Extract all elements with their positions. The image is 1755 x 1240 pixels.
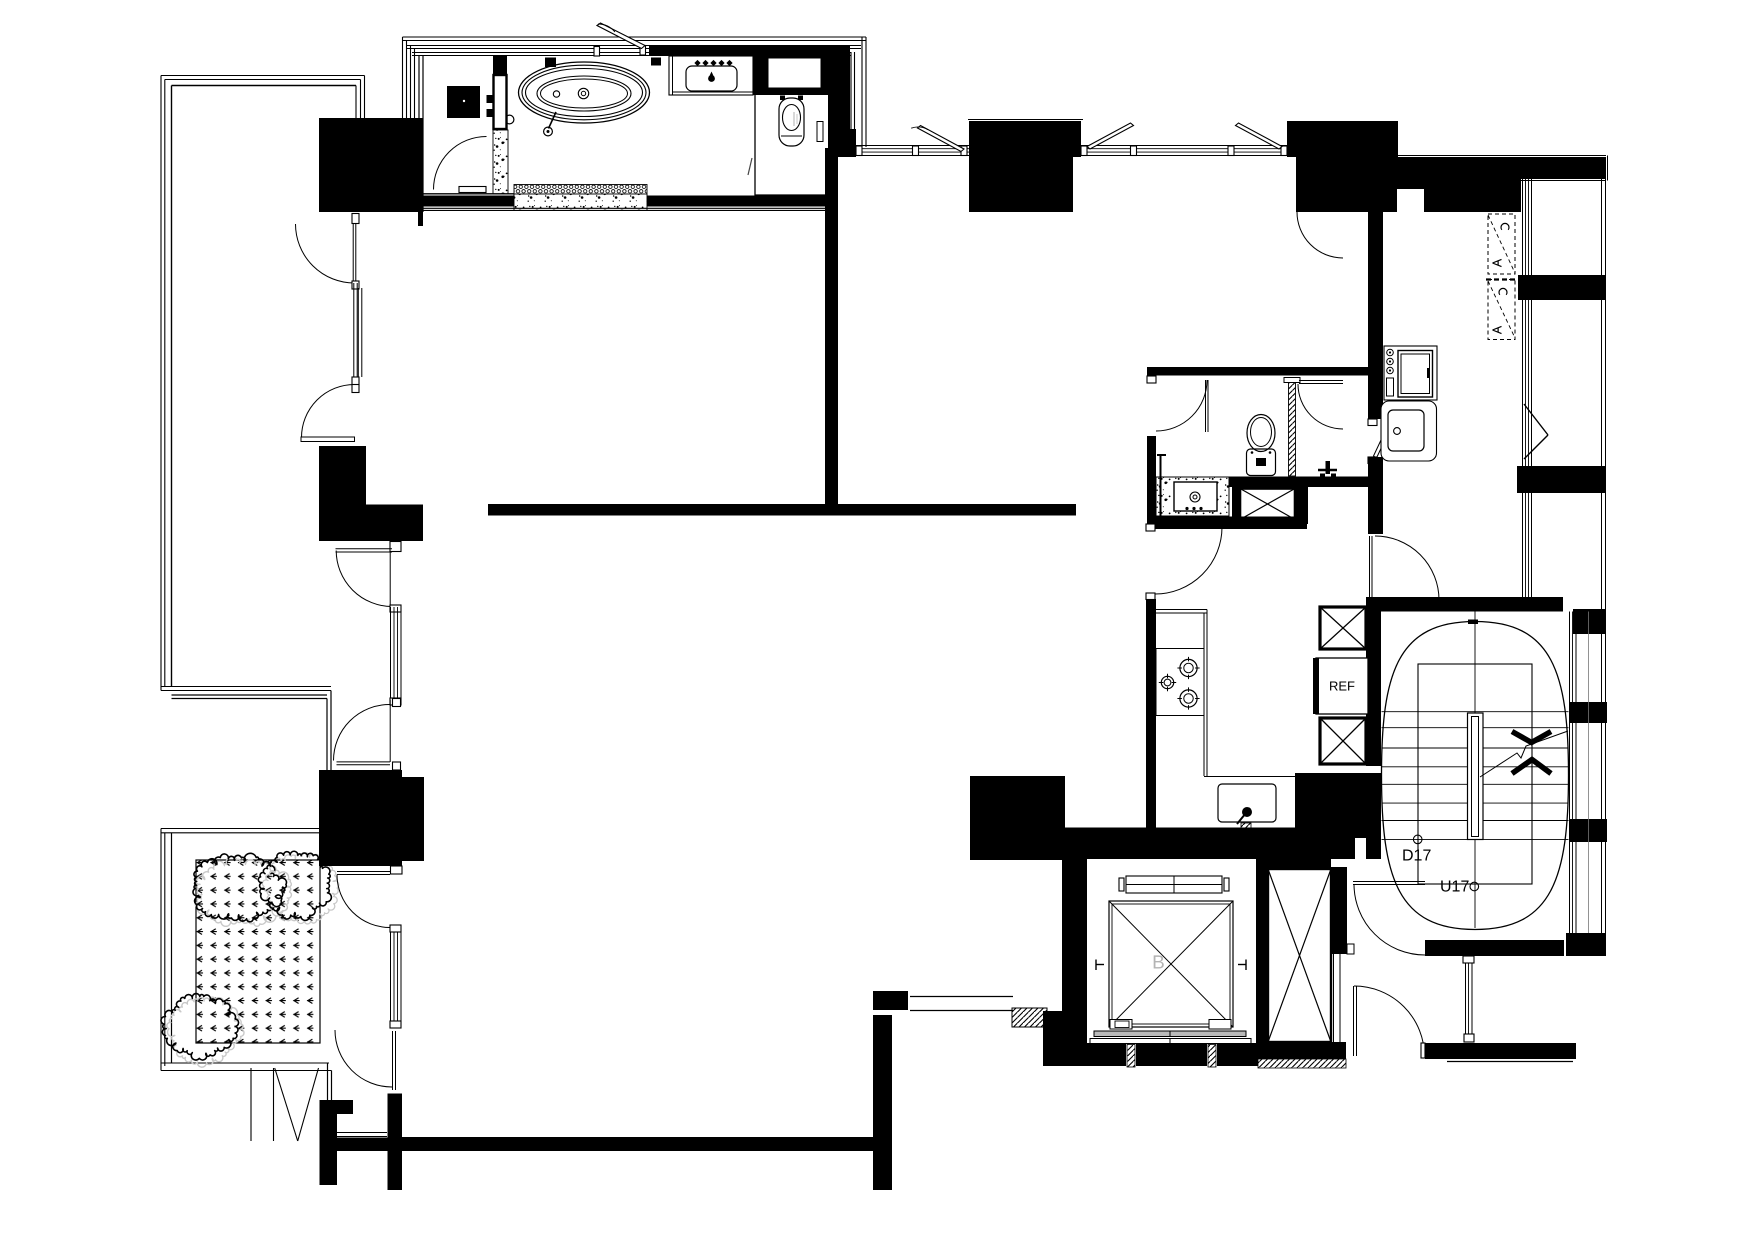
svg-text:D17: D17 — [1402, 848, 1431, 865]
svg-text:B: B — [1152, 953, 1165, 974]
svg-text:REF: REF — [1329, 679, 1355, 694]
svg-text:U17: U17 — [1440, 879, 1469, 896]
